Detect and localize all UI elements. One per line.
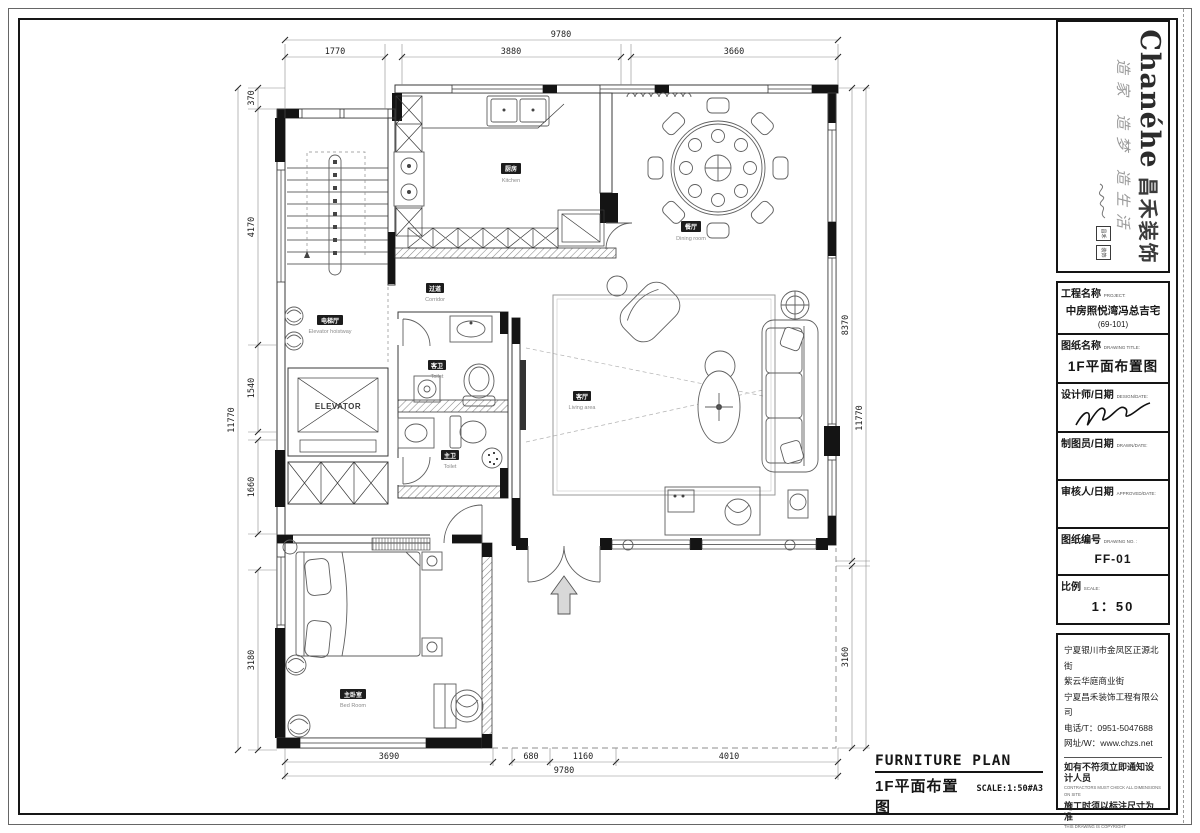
address-line: 宁夏银川市金凤区正源北街	[1064, 643, 1162, 674]
drawing-sheet: ELEVATOR	[0, 0, 1200, 833]
dim-left-seg1: 370	[247, 90, 257, 105]
project-label: 工程名称 PROJECT:	[1058, 283, 1168, 302]
shaft	[288, 462, 388, 504]
corridor-label-en: Corridor	[425, 297, 445, 303]
guest-toilet-label: 客卫	[430, 362, 443, 370]
scale-value: 1：50	[1058, 593, 1168, 623]
kitchen-sink	[487, 96, 549, 126]
approver-value	[1058, 498, 1168, 527]
entry	[528, 540, 795, 614]
entry-arrow-icon	[551, 576, 577, 614]
throw-pillow	[780, 440, 805, 465]
logo-panel: Chanéhe昌禾装饰 造家 造梦 造生活 昌禾 装饰	[1056, 20, 1170, 273]
tv	[520, 360, 526, 430]
bedroom-label: 主卧室	[344, 691, 362, 699]
dim-right-seg2: 3160	[841, 647, 851, 667]
note-cn-1: 如有不符须立即通知设计人员	[1064, 762, 1162, 784]
dimensions-top: 9780 1770 3880 3660	[282, 30, 841, 109]
bedroom-label-en: Bed Room	[340, 703, 366, 709]
drawing-no-label: 图纸编号 DRAWING NO. :	[1058, 527, 1168, 546]
dim-bottom-overall: 9780	[554, 766, 574, 776]
designer-label: 设计师/日期 DESIGN/DATE:	[1058, 382, 1168, 401]
dimensions-bottom: 3690 680 1160 4010 9780	[282, 748, 841, 780]
seal-icon: 昌禾	[1096, 226, 1111, 241]
throw-pillow	[779, 326, 805, 352]
drawing-footer-title: FURNITURE PLAN 1F平面布置图 SCALE:1:50#A3	[875, 753, 1043, 817]
terrace-boundary	[492, 548, 836, 748]
corridor-label: 过道	[429, 285, 441, 293]
address-line: 宁夏昌禾装饰工程有限公司	[1064, 690, 1162, 721]
dim-left-seg4: 1660	[247, 477, 257, 497]
dim-right-seg1: 8370	[841, 315, 851, 335]
radiator	[627, 93, 691, 97]
tv-cabinet	[665, 487, 760, 535]
footer-title-cn: 1F平面布置图	[875, 775, 970, 817]
company-info: 宁夏银川市金凤区正源北街 紫云华庭商业街 宁夏昌禾装饰工程有限公司 电话/T：0…	[1056, 633, 1170, 810]
vanity	[398, 418, 434, 448]
phone-line: 电话/T：0951-5047688	[1064, 721, 1162, 737]
dim-top-seg1: 1770	[325, 47, 345, 57]
dim-bottom-seg3: 1160	[573, 752, 593, 762]
door-swing	[403, 319, 430, 346]
logo: Chanéhe昌禾装饰 造家 造梦 造生活 昌禾 装饰	[1061, 24, 1165, 270]
door-swing	[403, 457, 430, 484]
dim-bottom-seg4: 4010	[719, 752, 739, 762]
dimensions-right: 8370 3160 11770	[836, 85, 870, 751]
footer-scale: SCALE:1:50#A3	[976, 784, 1043, 794]
guest-toilet	[403, 316, 495, 406]
dining-table	[648, 98, 788, 238]
designer-signature	[1058, 401, 1168, 431]
dim-left-overall: 11770	[227, 407, 237, 433]
floor-plan: ELEVATOR	[0, 0, 1050, 833]
drawing-no-value: FF-01	[1058, 546, 1168, 573]
nightstand	[422, 638, 442, 656]
approver-label: 审核人/日期 APPROVED/DATE:	[1058, 479, 1168, 498]
dim-bottom-seg1: 3690	[379, 752, 399, 762]
toilet	[464, 364, 494, 398]
drafter-value	[1058, 450, 1168, 479]
sofa	[762, 320, 818, 472]
dim-left-seg3: 1540	[247, 378, 257, 398]
kitchen-label: 厨房	[505, 165, 517, 173]
dim-left-seg2: 4170	[247, 217, 257, 237]
dim-right-overall: 11770	[855, 405, 865, 431]
address-line: 紫云华庭商业街	[1064, 674, 1162, 690]
drawing-title-value: 1F平面布置图	[1058, 352, 1168, 382]
seal-icon: 装饰	[1096, 245, 1111, 260]
elevator-hall-label: 电梯厅	[321, 317, 339, 325]
dining-label-en: Dining room	[676, 236, 706, 242]
title-block-fields: 工程名称 PROJECT: 中房照悦湾冯总吉宅 (69-101) 图纸名称 DR…	[1056, 281, 1170, 625]
dim-top-seg2: 3880	[501, 47, 521, 57]
stairs	[287, 152, 388, 275]
nightstand	[422, 552, 442, 570]
stove	[394, 152, 424, 206]
elevator-hall-label-en: Elevator hoistway	[308, 329, 351, 335]
dim-bottom-seg2: 680	[523, 752, 538, 762]
bed	[296, 552, 420, 658]
elevator-label: ELEVATOR	[315, 402, 361, 411]
kitchen-door	[606, 223, 632, 249]
master-toilet-label: 主卫	[444, 452, 456, 460]
dining-label: 餐厅	[684, 223, 697, 231]
plant-icon	[286, 655, 306, 675]
elevator-hall	[285, 307, 303, 350]
project-value: 中房照悦湾冯总吉宅 (69-101)	[1058, 302, 1168, 333]
lounge-chair	[725, 499, 751, 525]
footer-title-en: FURNITURE PLAN	[875, 753, 1043, 773]
brand-slogan: 造家 造梦 造生活	[1114, 58, 1131, 234]
signature-icon	[1068, 401, 1158, 429]
dim-top-overall: 9780	[551, 30, 571, 40]
website-line: 网址/W：www.chzs.net	[1064, 736, 1162, 752]
note-en-2: THIS DRAWING IS COPYRIGHT	[1064, 823, 1162, 830]
dining-area	[627, 93, 788, 238]
brand-logo-cn: 昌禾装饰	[1136, 176, 1158, 264]
guest-toilet-label-en: Toilet	[431, 374, 444, 380]
sheet-fold-line	[1183, 9, 1184, 823]
drafter-label: 制图员/日期 DRAWN/DATE:	[1058, 431, 1168, 450]
scale-label: 比例 SCALE:	[1058, 574, 1168, 593]
master-toilet-label-en: Toilet	[444, 464, 457, 470]
shower-drain	[482, 448, 502, 468]
note-en-1: CONTRACTORS MUST CHECK ALL DIMENSIONS ON…	[1064, 784, 1162, 798]
elevator: ELEVATOR	[288, 368, 388, 456]
living-label: 客厅	[575, 393, 588, 401]
vanity	[450, 316, 492, 342]
living-label-en: Living area	[569, 405, 597, 411]
armchair	[614, 276, 686, 348]
note-cn-2: 施工时须以标注尺寸为准	[1064, 801, 1162, 823]
brand-logo-en: Chanéhe	[1134, 29, 1165, 168]
plant-icon	[785, 540, 795, 550]
kitchen-label-en: Kitchen	[502, 178, 520, 184]
toilet	[450, 416, 461, 448]
dim-left-seg5: 3180	[247, 650, 257, 670]
divider	[1064, 757, 1162, 758]
drawing-title-label: 图纸名称 DRAWING TITLE:	[1058, 333, 1168, 352]
calligraphy-mark	[1097, 182, 1111, 222]
dim-top-seg3: 3660	[724, 47, 744, 57]
wardrobe-blind	[372, 538, 430, 550]
plant-icon	[623, 540, 633, 550]
